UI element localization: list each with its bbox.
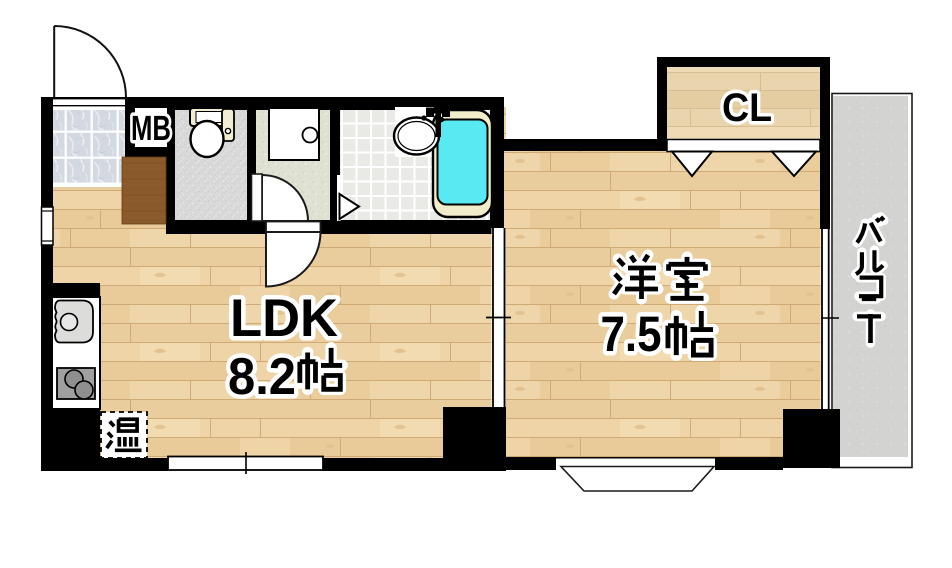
svg-text:MB: MB bbox=[131, 109, 171, 148]
svg-text:CL: CL bbox=[722, 86, 772, 130]
svg-text:8.2: 8.2 bbox=[228, 348, 296, 406]
svg-text:7.5: 7.5 bbox=[601, 306, 662, 362]
svg-text:LDK: LDK bbox=[230, 289, 338, 348]
